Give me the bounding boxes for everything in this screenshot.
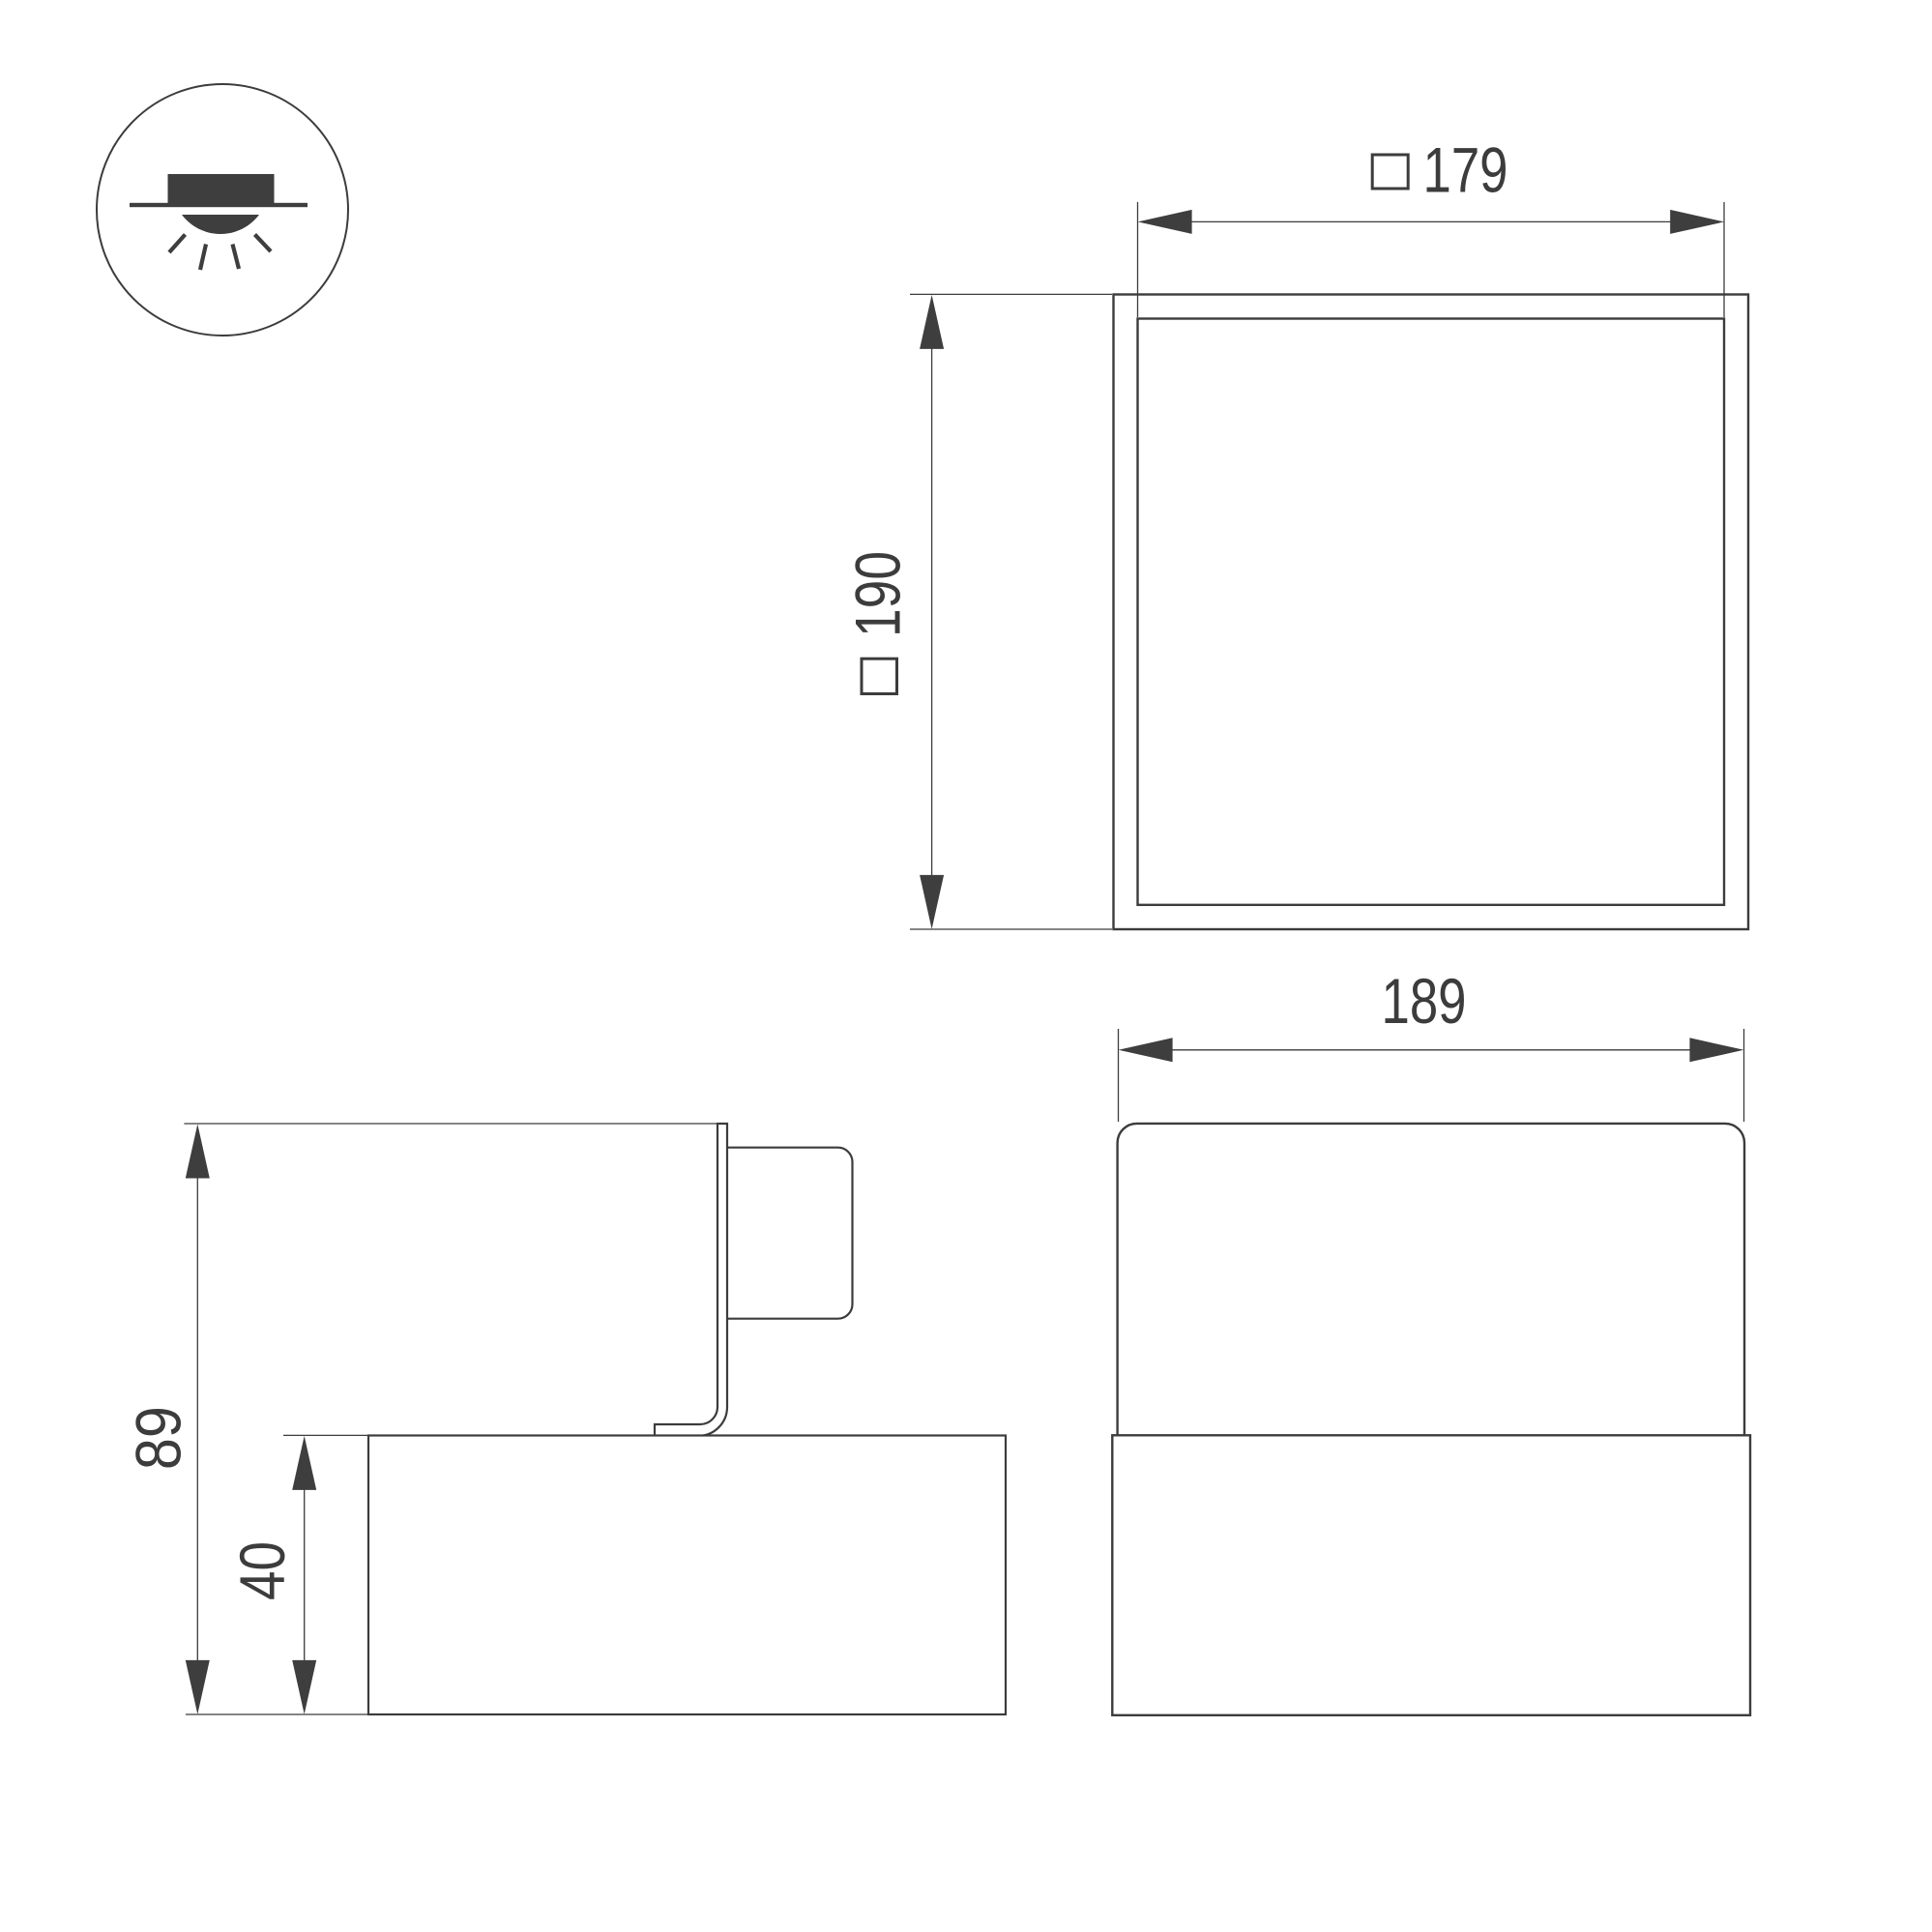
svg-text:189: 189: [1382, 965, 1467, 1037]
svg-text:179: 179: [1423, 134, 1508, 206]
svg-text:40: 40: [226, 1541, 298, 1600]
svg-text:89: 89: [123, 1406, 194, 1470]
svg-text:190: 190: [842, 551, 914, 637]
